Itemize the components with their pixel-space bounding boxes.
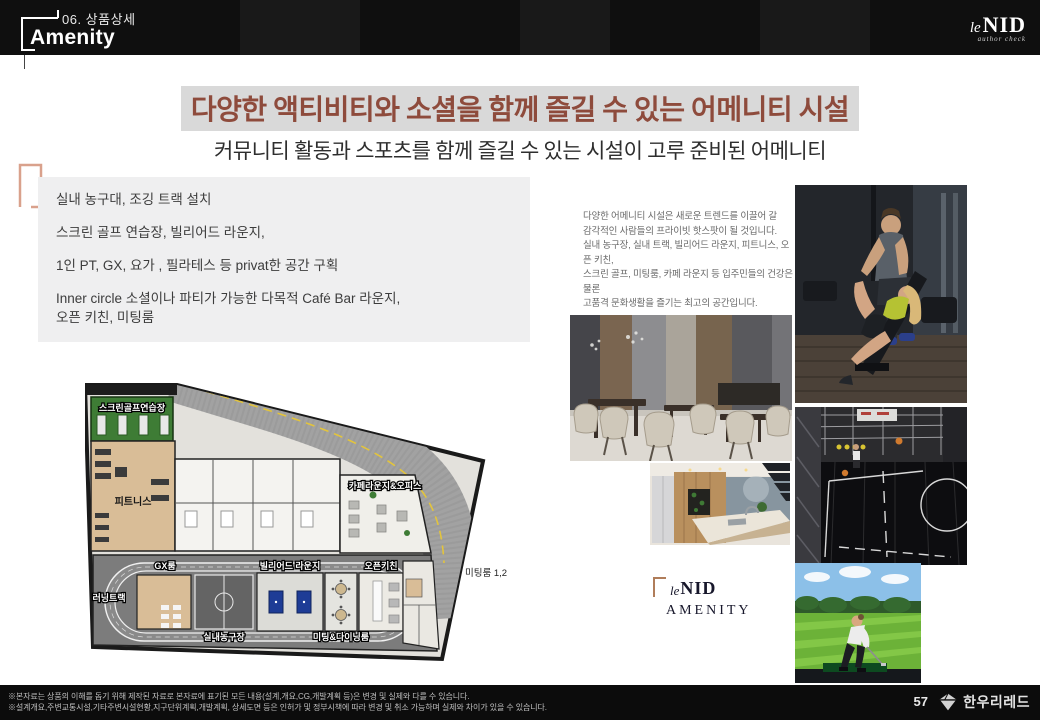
description-line: 실내 농구장, 실내 트랙, 빌리어드 라운지, 피트니스, 오픈 키친, [583,239,795,268]
header-texture-patch [520,0,610,55]
label-meeting-rooms: 미팅룸 1,2 [465,568,507,579]
header-texture-patch [760,0,870,55]
photo-open-kitchen [650,463,790,545]
label-screen-golf: 스크린골프연습장 [99,402,166,413]
label-running-track: 러닝트랙 [92,592,125,603]
photo-screen-golf [795,563,921,683]
indoor-basketball-court [195,575,253,629]
company-diamond-icon [938,692,958,712]
header-tick-line [24,55,25,69]
brand-le: le [970,20,981,36]
disclaimer-line: ※본자료는 상품의 이해를 돕기 위해 제작된 자료로 본자료에 표기된 모든 … [8,691,547,702]
brand-bracket-icon [652,575,668,599]
page-title: Amenity [30,26,115,50]
photo-gym-training [795,185,967,403]
feature-item: 스크린 골프 연습장, 빌리어드 라운지, [56,224,512,243]
label-cafe-lounge: 카페라운지&오피스 [349,480,422,491]
label-gx-room: GX룸 [154,560,175,571]
header-texture-patch [240,0,360,55]
photo-cafe-lounge [570,315,792,461]
brand-nid: NID [983,12,1026,37]
label-meeting-dining: 미팅&다이닝룸 [313,631,369,642]
amenity-floor-plan: 스크린골프연습장 피트니스 카페라운지&오피스 GX룸 빌리어드 라운지 오픈키… [85,383,525,663]
feature-list: 실내 농구대, 조깅 트랙 설치 스크린 골프 연습장, 빌리어드 라운지, 1… [38,177,530,342]
header-bar: 06. 상품상세 Amenity leNID author check [0,0,1040,55]
gx-room [137,575,191,629]
description-line: 감각적인 사람들의 프라이빗 핫스팟이 될 것입니다. [583,225,795,240]
feature-item: 실내 농구대, 조깅 트랙 설치 [56,191,512,210]
page-number: 57 [914,694,928,709]
photo-basketball-court [795,407,967,565]
brand-mark-nid: NID [680,578,716,599]
feature-item: Inner circle 소셜이나 파티가 가능한 다목적 Café Bar 라… [56,290,512,328]
meeting-rooms-zone [403,561,439,649]
billiard-lounge [257,573,323,631]
brand-mark: le NID AMENITY [652,575,752,619]
open-kitchen-zone [359,573,403,631]
company-logo: 한우리레드 [938,692,1030,712]
disclaimer-text: ※본자료는 상품의 이해를 돕기 위해 제작된 자료로 본자료에 표기된 모든 … [8,691,547,713]
hero-title-block: 다양한 액티비티와 소셜을 함께 즐길 수 있는 어메니티 시설 커뮤니티 활동… [0,86,1040,165]
service-rooms [175,459,340,551]
brand-tagline: author check [970,35,1026,43]
slide-page: 06. 상품상세 Amenity leNID author check 다양한 … [0,0,1040,720]
brand-logo: leNID author check [970,12,1026,43]
headline: 다양한 액티비티와 소셜을 함께 즐길 수 있는 어메니티 시설 [181,86,859,131]
label-billiard: 빌리어드 라운지 [260,560,320,571]
description-line: 다양한 어메니티 시설은 새로운 트렌드를 이끌어 갈 [583,210,795,225]
label-fitness: 피트니스 [115,495,152,508]
disclaimer-line: ※설계개요,주변교통시설,기타주변시설현황,지구단위계획,개발계획, 상세도면 … [8,702,547,713]
description-line: 스크린 골프, 미팅룸, 카페 라운지 등 입주민들의 건강은 물론 [583,268,795,297]
subheadline: 커뮤니티 활동과 스포츠를 함께 즐길 수 있는 시설이 고루 준비된 어메니티 [0,135,1040,165]
description-line: 고품격 문화생활을 즐기는 최고의 공간입니다. [583,297,795,312]
label-open-kitchen: 오픈키친 [364,560,397,571]
company-name: 한우리레드 [963,692,1030,712]
fitness-zone [91,441,175,551]
brand-mark-label: AMENITY [666,603,752,619]
meeting-dining-room [325,573,357,631]
label-basketball: 실내농구장 [203,631,245,642]
brand-mark-le: le [670,583,679,599]
description-paragraph: 다양한 어메니티 시설은 새로운 트렌드를 이끌어 갈 감각적인 사람들의 프라… [583,210,795,312]
feature-item: 1인 PT, GX, 요가 , 필라테스 등 privat한 공간 구획 [56,257,512,276]
footer-bar: ※본자료는 상품의 이해를 돕기 위해 제작된 자료로 본자료에 표기된 모든 … [0,685,1040,720]
